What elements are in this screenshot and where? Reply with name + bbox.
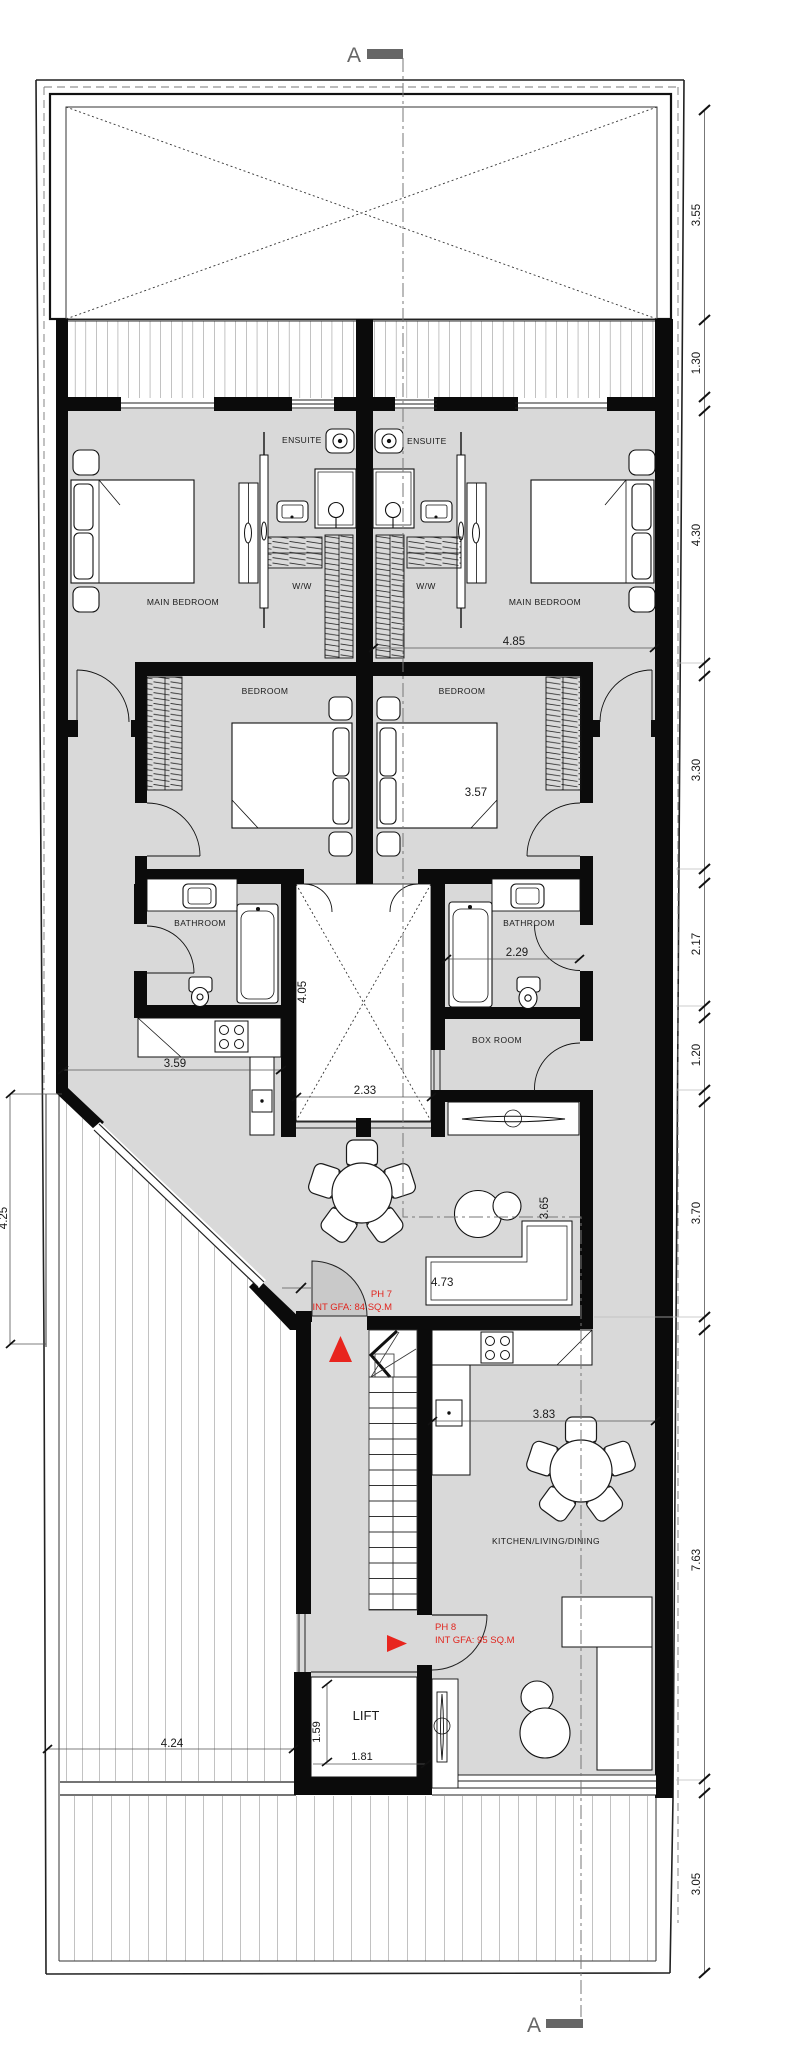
svg-text:2.17: 2.17 [691, 933, 703, 955]
svg-text:3.83: 3.83 [533, 1409, 555, 1421]
svg-text:4.24: 4.24 [161, 1738, 184, 1750]
svg-text:KITCHEN/LIVING/DINING: KITCHEN/LIVING/DINING [492, 1536, 600, 1546]
svg-text:2.33: 2.33 [354, 1085, 376, 1097]
svg-text:BOX ROOM: BOX ROOM [472, 1035, 522, 1045]
svg-text:3.57: 3.57 [465, 787, 487, 799]
svg-text:ENSUITE: ENSUITE [282, 435, 322, 445]
svg-text:BATHROOM: BATHROOM [503, 918, 555, 928]
svg-text:1.20: 1.20 [691, 1044, 703, 1066]
svg-text:BATHROOM: BATHROOM [174, 918, 226, 928]
svg-text:3.65: 3.65 [539, 1197, 551, 1219]
svg-text:PH 7: PH 7 [371, 1289, 392, 1300]
svg-text:4.73: 4.73 [431, 1277, 453, 1289]
svg-text:LIFT: LIFT [353, 1708, 380, 1723]
svg-text:INT GFA: 84 SQ.M: INT GFA: 84 SQ.M [312, 1302, 392, 1313]
svg-text:4.05: 4.05 [297, 981, 309, 1003]
svg-text:BEDROOM: BEDROOM [439, 686, 486, 696]
svg-text:ENSUITE: ENSUITE [407, 436, 447, 446]
svg-text:3.55: 3.55 [691, 204, 703, 226]
svg-text:4.25: 4.25 [0, 1207, 10, 1229]
svg-text:4.30: 4.30 [691, 524, 703, 546]
svg-text:3.05: 3.05 [691, 1873, 703, 1895]
svg-text:A: A [347, 44, 361, 67]
svg-text:A: A [527, 2014, 541, 2037]
svg-text:1.59: 1.59 [311, 1721, 323, 1742]
svg-text:W/W: W/W [416, 581, 436, 591]
svg-text:3.30: 3.30 [691, 759, 703, 781]
svg-text:PH 8: PH 8 [435, 1622, 456, 1633]
svg-text:3.70: 3.70 [691, 1202, 703, 1224]
svg-text:3.59: 3.59 [164, 1058, 186, 1070]
svg-text:1.81: 1.81 [351, 1751, 372, 1763]
svg-text:7.63: 7.63 [691, 1549, 703, 1571]
svg-text:4.85: 4.85 [503, 636, 525, 648]
svg-text:2.29: 2.29 [506, 947, 528, 959]
svg-text:MAIN BEDROOM: MAIN BEDROOM [147, 597, 219, 607]
svg-text:INT GFA: 95 SQ.M: INT GFA: 95 SQ.M [435, 1635, 515, 1646]
svg-text:1.30: 1.30 [691, 352, 703, 374]
svg-text:MAIN BEDROOM: MAIN BEDROOM [509, 597, 581, 607]
svg-text:W/W: W/W [292, 581, 312, 591]
svg-text:BEDROOM: BEDROOM [242, 686, 289, 696]
